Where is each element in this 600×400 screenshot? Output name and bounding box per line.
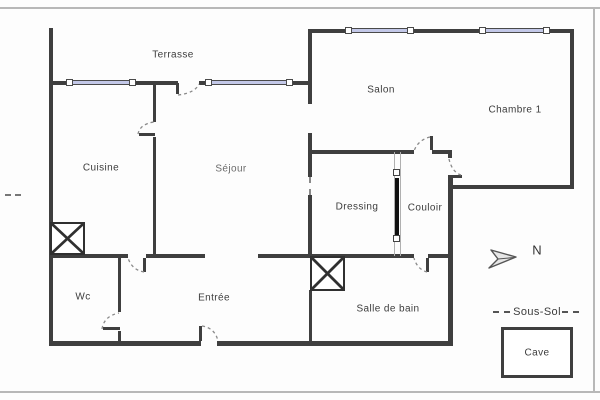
floor-plan-canvas: Terrasse Salon Chambre 1 Cuisine Séjour … [0,0,600,400]
room-label-sejour: Séjour [215,164,246,175]
north-arrow-icon [489,250,516,268]
legend-dash [493,311,510,313]
room-label-salon: Salon [367,85,395,96]
cave-box: Cave [501,327,573,378]
room-label-wc: Wc [75,292,90,303]
basement-label: Sous-Sol [513,306,561,318]
room-label-dressing: Dressing [336,202,379,213]
room-label-chambre1: Chambre 1 [488,105,541,116]
north-label: N [532,243,541,258]
room-label-cuisine: Cuisine [83,163,119,174]
room-label-couloir: Couloir [408,203,442,214]
room-label-cave: Cave [525,348,550,359]
room-label-terrasse: Terrasse [152,50,194,61]
room-label-salle-de-bain: Salle de bain [356,304,419,315]
room-label-entree: Entrée [198,293,230,304]
legend-dash [562,311,579,313]
